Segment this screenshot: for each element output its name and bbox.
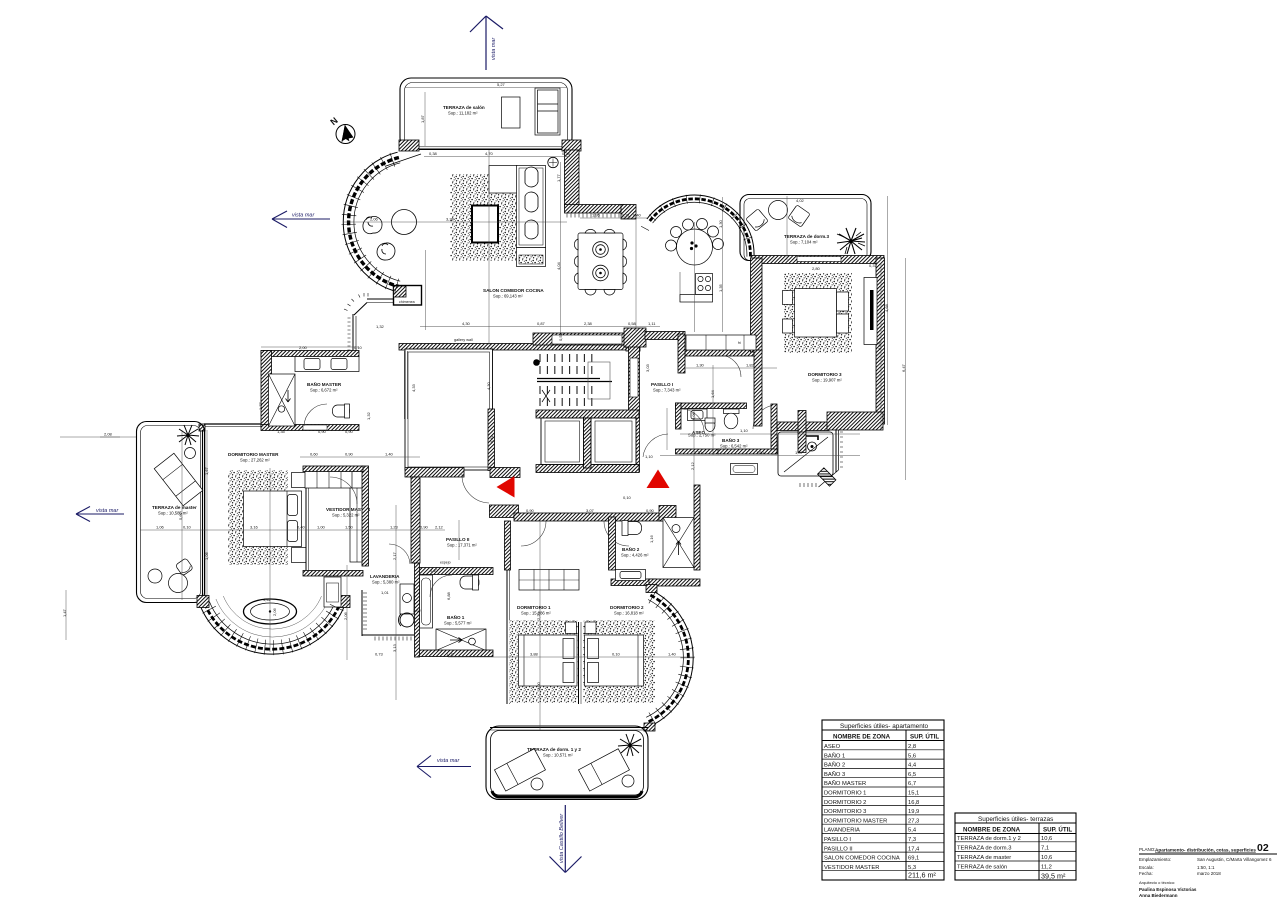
- svg-text:Paulina Espinosa Victorias: Paulina Espinosa Victorias: [1139, 887, 1197, 892]
- svg-text:Sup.: 69,143 m²: Sup.: 69,143 m²: [493, 294, 523, 299]
- svg-text:1:50, 1:1: 1:50, 1:1: [1197, 865, 1215, 870]
- svg-text:1,80: 1,80: [756, 450, 765, 455]
- svg-text:1,32: 1,32: [376, 324, 385, 329]
- svg-text:DORMITORIO 1: DORMITORIO 1: [517, 605, 551, 610]
- svg-text:7,3: 7,3: [908, 837, 916, 843]
- svg-text:DORMITORIO 2: DORMITORIO 2: [824, 800, 866, 806]
- svg-text:marzo 2018: marzo 2018: [1197, 871, 1221, 876]
- svg-text:SALON COMEDOR COCINA: SALON COMEDOR COCINA: [483, 288, 544, 293]
- svg-text:DORMITORIO MASTER: DORMITORIO MASTER: [228, 452, 279, 457]
- svg-text:15,1: 15,1: [908, 791, 919, 797]
- svg-text:0,87: 0,87: [537, 321, 546, 326]
- svg-text:DORMITORIO 2: DORMITORIO 2: [610, 605, 644, 610]
- svg-text:10,6: 10,6: [1041, 836, 1052, 842]
- svg-text:3,07: 3,07: [586, 508, 595, 513]
- svg-text:3,88: 3,88: [530, 652, 539, 657]
- svg-text:0,40: 0,40: [633, 213, 642, 218]
- svg-text:TERRAZA de salón: TERRAZA de salón: [957, 865, 1007, 871]
- svg-text:Sup.: 2,750 m²: Sup.: 2,750 m²: [688, 433, 716, 438]
- svg-text:39,5 m²: 39,5 m²: [1041, 872, 1066, 881]
- svg-text:TERRAZA de dorm.1 y 2: TERRAZA de dorm.1 y 2: [957, 836, 1021, 842]
- svg-text:BAÑO 2: BAÑO 2: [622, 546, 640, 552]
- svg-text:1,01: 1,01: [381, 590, 390, 595]
- svg-text:NOMBRE DE ZONA: NOMBRE DE ZONA: [833, 734, 891, 741]
- svg-text:BAÑO 3: BAÑO 3: [722, 437, 740, 443]
- svg-text:0,73: 0,73: [375, 652, 384, 657]
- svg-text:1,10: 1,10: [645, 454, 654, 459]
- svg-text:Emplazamiento:: Emplazamiento:: [1139, 857, 1171, 862]
- svg-text:TERRAZA de master: TERRAZA de master: [957, 855, 1011, 861]
- svg-text:10,6: 10,6: [1041, 855, 1052, 861]
- svg-text:2,80: 2,80: [812, 266, 821, 271]
- svg-text:3,03: 3,03: [645, 363, 650, 372]
- svg-text:02: 02: [1257, 842, 1269, 854]
- svg-text:0,90: 0,90: [526, 508, 535, 513]
- svg-text:0,40: 0,40: [297, 525, 306, 530]
- svg-text:3,38: 3,38: [446, 217, 455, 222]
- svg-text:2,06: 2,06: [272, 607, 277, 616]
- svg-text:SUP. ÚTIL: SUP. ÚTIL: [1043, 827, 1072, 834]
- svg-text:16,8: 16,8: [908, 800, 919, 806]
- svg-text:0,10: 0,10: [354, 345, 363, 350]
- svg-text:1,35: 1,35: [277, 429, 286, 434]
- svg-text:5,27: 5,27: [497, 82, 506, 87]
- svg-text:1,95: 1,95: [592, 213, 601, 218]
- svg-text:chimenea: chimenea: [399, 300, 415, 304]
- svg-text:PASILLO II: PASILLO II: [446, 537, 469, 542]
- svg-text:PASILLO I: PASILLO I: [824, 837, 851, 843]
- svg-text:1,11: 1,11: [648, 321, 656, 326]
- svg-text:1,40: 1,40: [385, 452, 394, 457]
- svg-text:6,5: 6,5: [908, 772, 916, 778]
- svg-text:1,16: 1,16: [649, 534, 654, 543]
- svg-text:0,90: 0,90: [646, 508, 655, 513]
- svg-text:LAVANDERIA: LAVANDERIA: [824, 828, 860, 834]
- svg-text:BAÑO MASTER: BAÑO MASTER: [307, 381, 342, 387]
- svg-text:2,00: 2,00: [299, 345, 308, 350]
- svg-text:TERRAZA de dorm.3: TERRAZA de dorm.3: [957, 846, 1011, 852]
- svg-text:2,8: 2,8: [908, 744, 916, 750]
- svg-text:TERRAZA de dorm.3: TERRAZA de dorm.3: [784, 234, 829, 239]
- svg-text:1,30: 1,30: [718, 219, 723, 228]
- svg-text:1,35: 1,35: [718, 283, 723, 292]
- svg-text:6,88: 6,88: [446, 591, 451, 600]
- svg-text:1,00: 1,00: [317, 525, 326, 530]
- svg-text:0,51: 0,51: [558, 332, 563, 341]
- svg-text:Sup.: 6,542 m²: Sup.: 6,542 m²: [720, 444, 748, 449]
- svg-text:1,32: 1,32: [366, 411, 371, 420]
- svg-text:6,41: 6,41: [489, 434, 494, 443]
- svg-text:2,17: 2,17: [392, 551, 397, 560]
- svg-text:DORMITORIO 3: DORMITORIO 3: [824, 809, 866, 815]
- svg-text:7,1: 7,1: [1041, 846, 1049, 852]
- svg-text:4,70: 4,70: [485, 151, 494, 156]
- svg-text:5,6: 5,6: [908, 753, 916, 759]
- svg-text:0,38: 0,38: [562, 151, 571, 156]
- svg-text:DORMITORIO 1: DORMITORIO 1: [824, 791, 866, 797]
- svg-text:Sup.: 10,585 m²: Sup.: 10,585 m²: [158, 511, 188, 516]
- svg-text:1,77: 1,77: [556, 173, 561, 182]
- svg-text:2,06: 2,06: [343, 611, 348, 620]
- svg-text:3,13: 3,13: [392, 643, 397, 652]
- svg-text:Sup.: 5,322 m²: Sup.: 5,322 m²: [332, 513, 360, 518]
- svg-text:2,12: 2,12: [435, 525, 444, 530]
- svg-text:1,82: 1,82: [746, 363, 755, 368]
- svg-text:vista mar: vista mar: [437, 758, 460, 764]
- svg-text:11,2: 11,2: [1041, 865, 1052, 871]
- svg-text:Sup.: 4,426 m²: Sup.: 4,426 m²: [621, 553, 649, 558]
- svg-text:4,33: 4,33: [411, 383, 416, 392]
- svg-text:1,02: 1,02: [446, 652, 455, 657]
- svg-text:BAÑO 2: BAÑO 2: [824, 762, 845, 769]
- svg-text:1,62: 1,62: [413, 608, 422, 613]
- svg-text:1,06: 1,06: [204, 551, 209, 560]
- svg-text:27,3: 27,3: [908, 818, 919, 824]
- svg-text:Superficies útiles- terrazas: Superficies útiles- terrazas: [978, 816, 1053, 823]
- svg-text:BAÑO MASTER: BAÑO MASTER: [824, 780, 866, 787]
- svg-text:0,90: 0,90: [345, 429, 354, 434]
- svg-text:Anna Biedermann: Anna Biedermann: [1139, 893, 1178, 898]
- svg-text:1,40: 1,40: [668, 652, 677, 657]
- svg-text:Escala:: Escala:: [1139, 865, 1154, 870]
- svg-text:19,9: 19,9: [908, 809, 919, 815]
- svg-text:DORMITORIO MASTER: DORMITORIO MASTER: [824, 818, 887, 824]
- svg-text:fri: fri: [738, 341, 741, 345]
- svg-text:TERRAZA de master: TERRAZA de master: [152, 505, 197, 510]
- svg-text:4,30: 4,30: [486, 381, 491, 390]
- svg-text:4,68: 4,68: [877, 341, 882, 350]
- svg-text:gallery wall: gallery wall: [454, 338, 473, 342]
- svg-text:2,06: 2,06: [370, 217, 379, 222]
- svg-text:1,47: 1,47: [62, 608, 67, 617]
- svg-text:Apartamento- distribución, cot: Apartamento- distribución, cotas, superf…: [1155, 848, 1256, 853]
- svg-text:Sup.: 7,104 m²: Sup.: 7,104 m²: [790, 240, 818, 245]
- svg-text:PASILLO II: PASILLO II: [824, 846, 853, 852]
- svg-text:San Augustin, C/Marta Villango: San Augustin, C/Marta Villangomez 6: [1197, 857, 1272, 862]
- svg-text:1,30: 1,30: [696, 363, 705, 368]
- svg-text:4,42: 4,42: [263, 597, 272, 602]
- svg-text:Sup.: 10,571 m²: Sup.: 10,571 m²: [543, 753, 573, 758]
- svg-text:0,38: 0,38: [429, 151, 438, 156]
- svg-text:4,04: 4,04: [556, 261, 561, 270]
- svg-text:vista Castillo Bellver: vista Castillo Bellver: [559, 813, 565, 863]
- svg-text:SALON COMEDOR COCINA: SALON COMEDOR COCINA: [824, 856, 900, 862]
- svg-text:TERRAZA de salón: TERRAZA de salón: [443, 105, 485, 110]
- svg-text:2,20: 2,20: [536, 611, 541, 620]
- svg-text:0,60: 0,60: [310, 452, 319, 457]
- svg-text:1,77: 1,77: [258, 401, 263, 410]
- svg-text:1,10: 1,10: [740, 428, 749, 433]
- svg-text:0,10: 0,10: [623, 495, 632, 500]
- svg-text:1,67: 1,67: [204, 466, 209, 475]
- svg-text:BAÑO 3: BAÑO 3: [824, 771, 845, 778]
- svg-text:1,23: 1,23: [390, 525, 399, 530]
- svg-text:Sup.: 27,262 m²: Sup.: 27,262 m²: [240, 458, 270, 463]
- svg-text:4,02: 4,02: [796, 198, 805, 203]
- svg-text:1,87: 1,87: [795, 450, 804, 455]
- svg-text:0,31: 0,31: [622, 213, 631, 218]
- svg-text:4,68: 4,68: [884, 303, 889, 312]
- svg-text:Superficies útiles- apartament: Superficies útiles- apartamento: [840, 723, 929, 730]
- svg-text:PASILLO I: PASILLO I: [651, 382, 673, 387]
- svg-text:1,06: 1,06: [156, 525, 165, 530]
- svg-text:SUP. ÚTIL: SUP. ÚTIL: [910, 734, 939, 741]
- svg-text:Fecha:: Fecha:: [1139, 871, 1153, 876]
- svg-text:0,10: 0,10: [612, 652, 621, 657]
- svg-text:6,06: 6,06: [691, 411, 696, 420]
- svg-text:BAÑO 1: BAÑO 1: [824, 752, 845, 759]
- svg-text:1,50: 1,50: [345, 525, 354, 530]
- svg-text:vista mar: vista mar: [292, 213, 315, 219]
- svg-text:0,37: 0,37: [869, 263, 878, 268]
- svg-text:5,67: 5,67: [178, 511, 183, 520]
- svg-text:2,08: 2,08: [104, 432, 113, 437]
- svg-text:3,16: 3,16: [250, 525, 259, 530]
- svg-text:0,90: 0,90: [318, 429, 327, 434]
- svg-text:4,30: 4,30: [462, 321, 471, 326]
- svg-text:211,6 m²: 211,6 m²: [908, 871, 936, 880]
- svg-text:69,1: 69,1: [908, 856, 919, 862]
- svg-text:NOMBRE DE ZONA: NOMBRE DE ZONA: [963, 827, 1021, 834]
- svg-text:espejo: espejo: [440, 561, 451, 565]
- svg-text:Sup.: 5,577 m²: Sup.: 5,577 m²: [444, 621, 472, 626]
- svg-text:4,4: 4,4: [908, 763, 917, 769]
- svg-text:Sup.: 11,182 m²: Sup.: 11,182 m²: [448, 111, 478, 116]
- svg-text:DORMITORIO 3: DORMITORIO 3: [808, 372, 842, 377]
- svg-text:ASEO: ASEO: [824, 744, 841, 750]
- svg-text:0,90: 0,90: [420, 525, 429, 530]
- svg-text:BAÑO 1: BAÑO 1: [447, 614, 465, 620]
- svg-text:0,58: 0,58: [628, 321, 637, 326]
- svg-text:Sup.: 7,343 m²: Sup.: 7,343 m²: [653, 388, 681, 393]
- svg-text:vista mar: vista mar: [491, 37, 497, 60]
- svg-text:2,38: 2,38: [584, 321, 593, 326]
- svg-text:3,00: 3,00: [536, 681, 541, 690]
- svg-text:0,10: 0,10: [430, 568, 439, 573]
- svg-text:5,4: 5,4: [908, 828, 917, 834]
- svg-text:Arquitecto o técnico:: Arquitecto o técnico:: [1139, 880, 1175, 885]
- svg-text:1,64: 1,64: [710, 389, 715, 398]
- svg-text:17,4: 17,4: [908, 846, 920, 852]
- svg-text:Sup.: 6,672 m²: Sup.: 6,672 m²: [310, 388, 338, 393]
- svg-text:PLANO:: PLANO:: [1139, 847, 1156, 852]
- svg-text:1,87: 1,87: [420, 114, 425, 123]
- svg-text:1,30: 1,30: [694, 450, 703, 455]
- svg-text:Sup.: 16,818 m²: Sup.: 16,818 m²: [614, 611, 644, 616]
- svg-text:Sup.: 19,907 m²: Sup.: 19,907 m²: [812, 378, 842, 383]
- svg-text:6,7: 6,7: [908, 781, 916, 787]
- svg-text:Sup.: 17,371 m²: Sup.: 17,371 m²: [447, 543, 477, 548]
- svg-text:2,12: 2,12: [690, 461, 695, 470]
- svg-text:LAVANDERIA: LAVANDERIA: [370, 574, 400, 579]
- svg-text:VESTIDOR MASTER: VESTIDOR MASTER: [824, 865, 879, 871]
- svg-text:0,10: 0,10: [183, 525, 192, 530]
- svg-text:0,90: 0,90: [345, 452, 354, 457]
- svg-text:6,47: 6,47: [901, 363, 906, 372]
- svg-text:vista mar: vista mar: [96, 508, 119, 514]
